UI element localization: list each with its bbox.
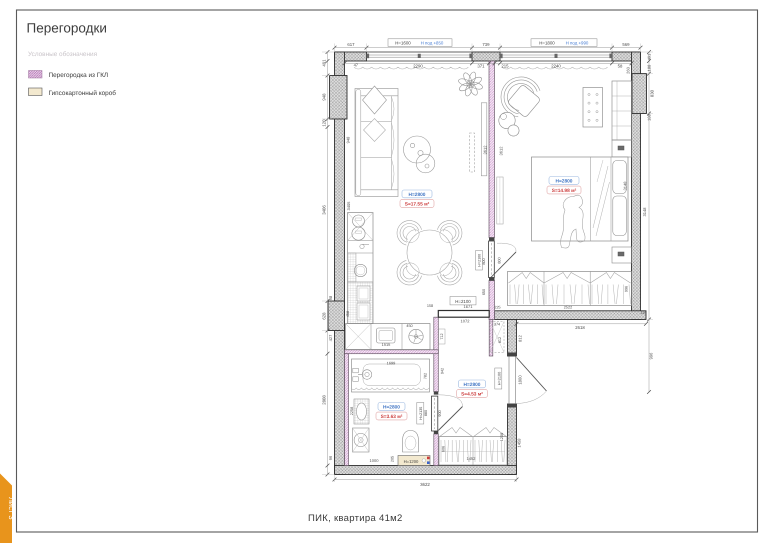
svg-text:H=1600: H=1600 <box>395 40 411 45</box>
svg-text:782: 782 <box>423 373 427 379</box>
svg-text:H=2800: H=2800 <box>464 382 481 388</box>
svg-text:H=2100: H=2100 <box>455 299 471 304</box>
svg-text:628: 628 <box>321 312 326 320</box>
svg-text:458: 458 <box>346 311 350 317</box>
svg-text:996: 996 <box>625 286 629 292</box>
svg-text:2618: 2618 <box>575 325 585 330</box>
svg-text:491: 491 <box>647 53 652 60</box>
svg-text:Условные обозначения: Условные обозначения <box>28 51 98 58</box>
svg-text:H=2800: H=2800 <box>409 192 426 198</box>
svg-text:H=1800: H=1800 <box>539 40 555 45</box>
svg-text:800: 800 <box>482 258 486 264</box>
svg-text:Лист 3: Лист 3 <box>7 497 16 520</box>
svg-text:3622: 3622 <box>420 482 430 487</box>
svg-text:H=1200: H=1200 <box>404 459 419 464</box>
svg-text:H=2100: H=2100 <box>478 254 482 267</box>
svg-text:3148: 3148 <box>642 207 647 217</box>
svg-text:830: 830 <box>650 89 655 97</box>
svg-text:S=4.53 м²: S=4.53 м² <box>461 392 483 398</box>
svg-text:225: 225 <box>494 305 500 309</box>
svg-text:3612: 3612 <box>483 145 488 155</box>
svg-text:H=2100: H=2100 <box>497 372 501 385</box>
svg-text:617: 617 <box>347 42 355 47</box>
svg-text:942: 942 <box>441 368 445 374</box>
svg-text:H=2800: H=2800 <box>383 405 400 411</box>
svg-text:Гипсокартонный короб: Гипсокартонный короб <box>49 90 117 97</box>
svg-text:371: 371 <box>477 63 485 68</box>
svg-text:Н под +990: Н под +990 <box>566 40 589 45</box>
svg-text:450: 450 <box>406 324 412 328</box>
svg-text:2522: 2522 <box>564 305 572 309</box>
svg-text:96: 96 <box>328 455 333 460</box>
svg-text:812: 812 <box>498 337 502 343</box>
svg-text:3148: 3148 <box>623 181 628 191</box>
svg-text:1515: 1515 <box>382 342 391 347</box>
svg-text:650: 650 <box>482 289 486 295</box>
svg-text:900: 900 <box>438 410 442 416</box>
svg-text:374: 374 <box>494 322 500 326</box>
svg-text:S=3.63 м²: S=3.63 м² <box>381 414 403 420</box>
svg-text:491: 491 <box>321 59 326 67</box>
svg-text:H=2800: H=2800 <box>556 179 573 185</box>
svg-text:3405: 3405 <box>346 201 351 211</box>
svg-text:1000: 1000 <box>370 458 380 463</box>
svg-text:260: 260 <box>625 66 630 73</box>
svg-text:880: 880 <box>424 410 428 416</box>
svg-text:2808: 2808 <box>321 395 326 405</box>
svg-text:Перегородки: Перегородки <box>27 21 107 36</box>
svg-text:948: 948 <box>346 136 351 143</box>
svg-text:205: 205 <box>391 456 395 462</box>
svg-text:H=2135: H=2135 <box>419 407 423 420</box>
svg-text:1208: 1208 <box>500 433 504 441</box>
svg-text:3612: 3612 <box>499 146 504 156</box>
svg-text:188: 188 <box>647 64 652 71</box>
svg-text:1452: 1452 <box>467 456 477 461</box>
svg-text:1458: 1458 <box>517 438 522 448</box>
svg-text:712: 712 <box>440 333 444 339</box>
svg-text:1699: 1699 <box>387 361 396 366</box>
svg-text:996: 996 <box>649 352 654 359</box>
svg-text:3406: 3406 <box>321 205 326 215</box>
svg-text:2240: 2240 <box>551 63 561 68</box>
svg-text:1800: 1800 <box>518 375 523 385</box>
svg-text:215: 215 <box>501 63 509 68</box>
svg-text:116: 116 <box>640 311 646 315</box>
svg-text:569: 569 <box>622 42 630 47</box>
svg-text:Н под +850: Н под +850 <box>421 40 444 45</box>
svg-text:606: 606 <box>442 446 446 452</box>
svg-text:2258: 2258 <box>350 407 354 415</box>
svg-text:2290: 2290 <box>413 63 423 68</box>
svg-text:47: 47 <box>354 63 359 68</box>
svg-text:120: 120 <box>321 119 326 127</box>
svg-text:739: 739 <box>482 42 490 47</box>
svg-text:Перегородка из ГКЛ: Перегородка из ГКЛ <box>49 72 109 79</box>
svg-text:S=14.98 м²: S=14.98 м² <box>552 188 577 194</box>
svg-text:98: 98 <box>328 295 333 300</box>
svg-text:S=17.55 м²: S=17.55 м² <box>405 202 430 208</box>
svg-text:800: 800 <box>498 257 502 263</box>
svg-text:812: 812 <box>518 334 523 341</box>
svg-text:427: 427 <box>328 334 333 341</box>
svg-text:1072: 1072 <box>461 319 471 324</box>
svg-text:948: 948 <box>321 93 326 101</box>
svg-text:ПИК, квартира 41м2: ПИК, квартира 41м2 <box>308 513 403 524</box>
svg-text:58: 58 <box>618 63 623 68</box>
svg-text:158: 158 <box>427 304 433 308</box>
